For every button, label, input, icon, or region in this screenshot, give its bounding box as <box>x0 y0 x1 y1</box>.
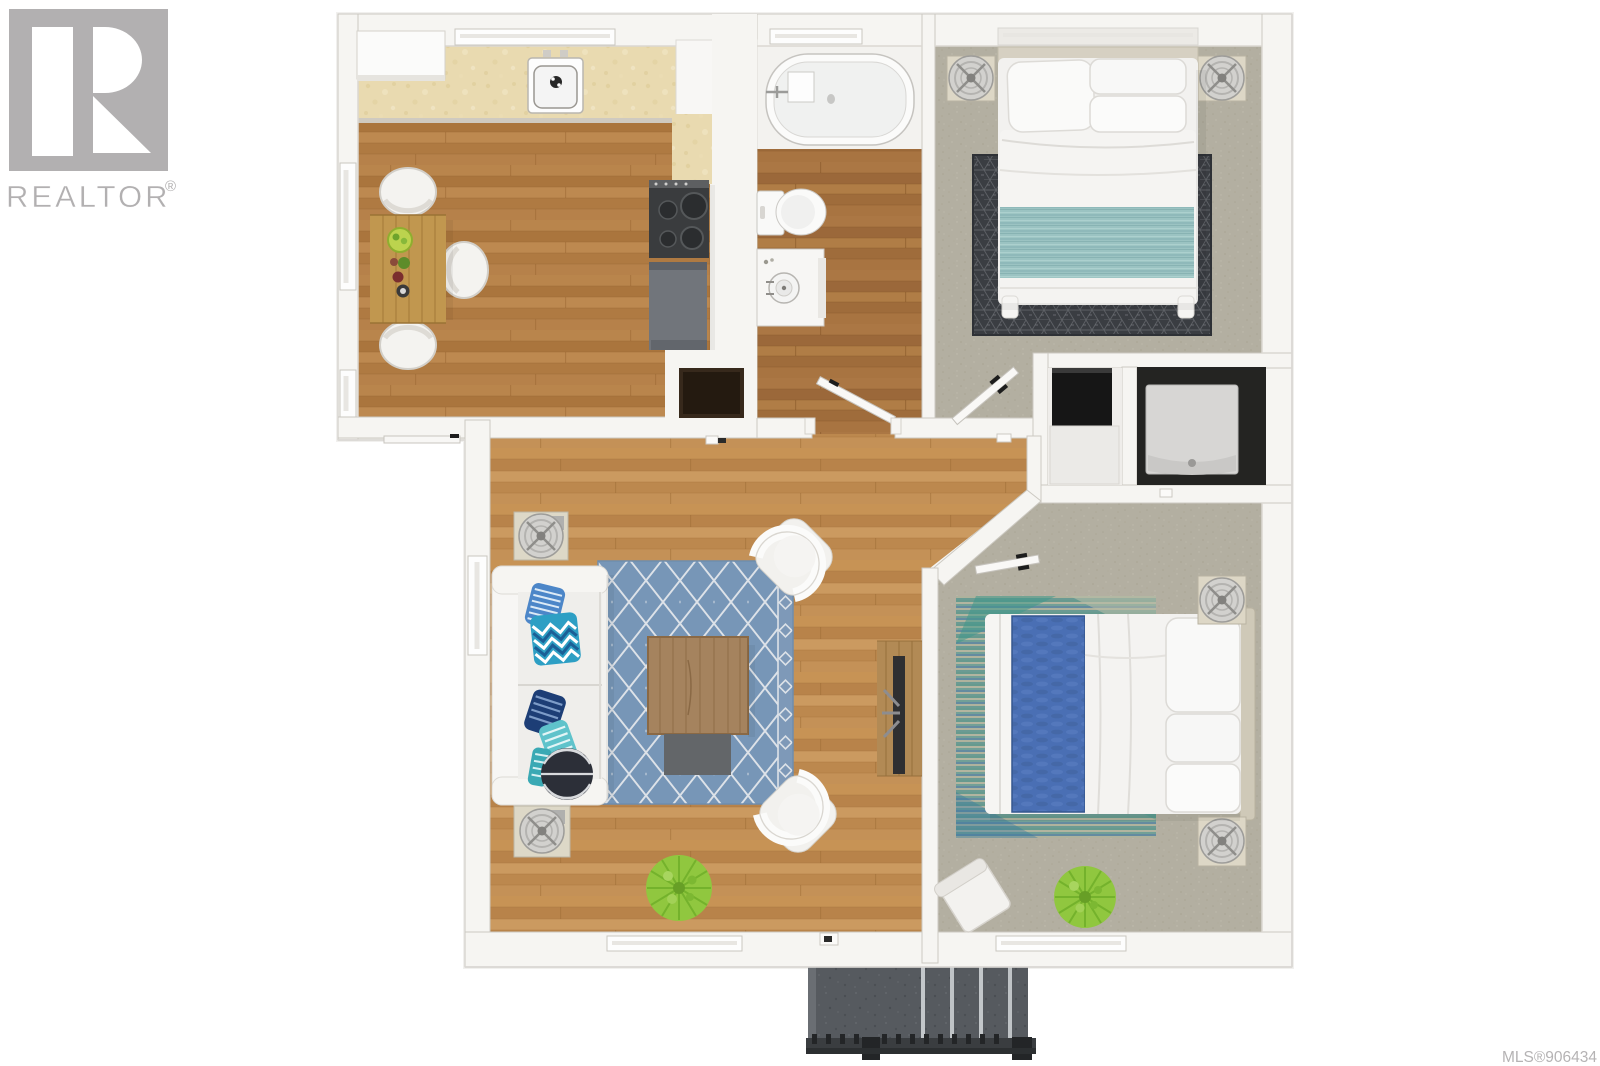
svg-text:REALTOR: REALTOR <box>6 179 171 214</box>
svg-text:MLS®906434: MLS®906434 <box>1502 1049 1597 1066</box>
svg-text:®: ® <box>165 178 176 195</box>
